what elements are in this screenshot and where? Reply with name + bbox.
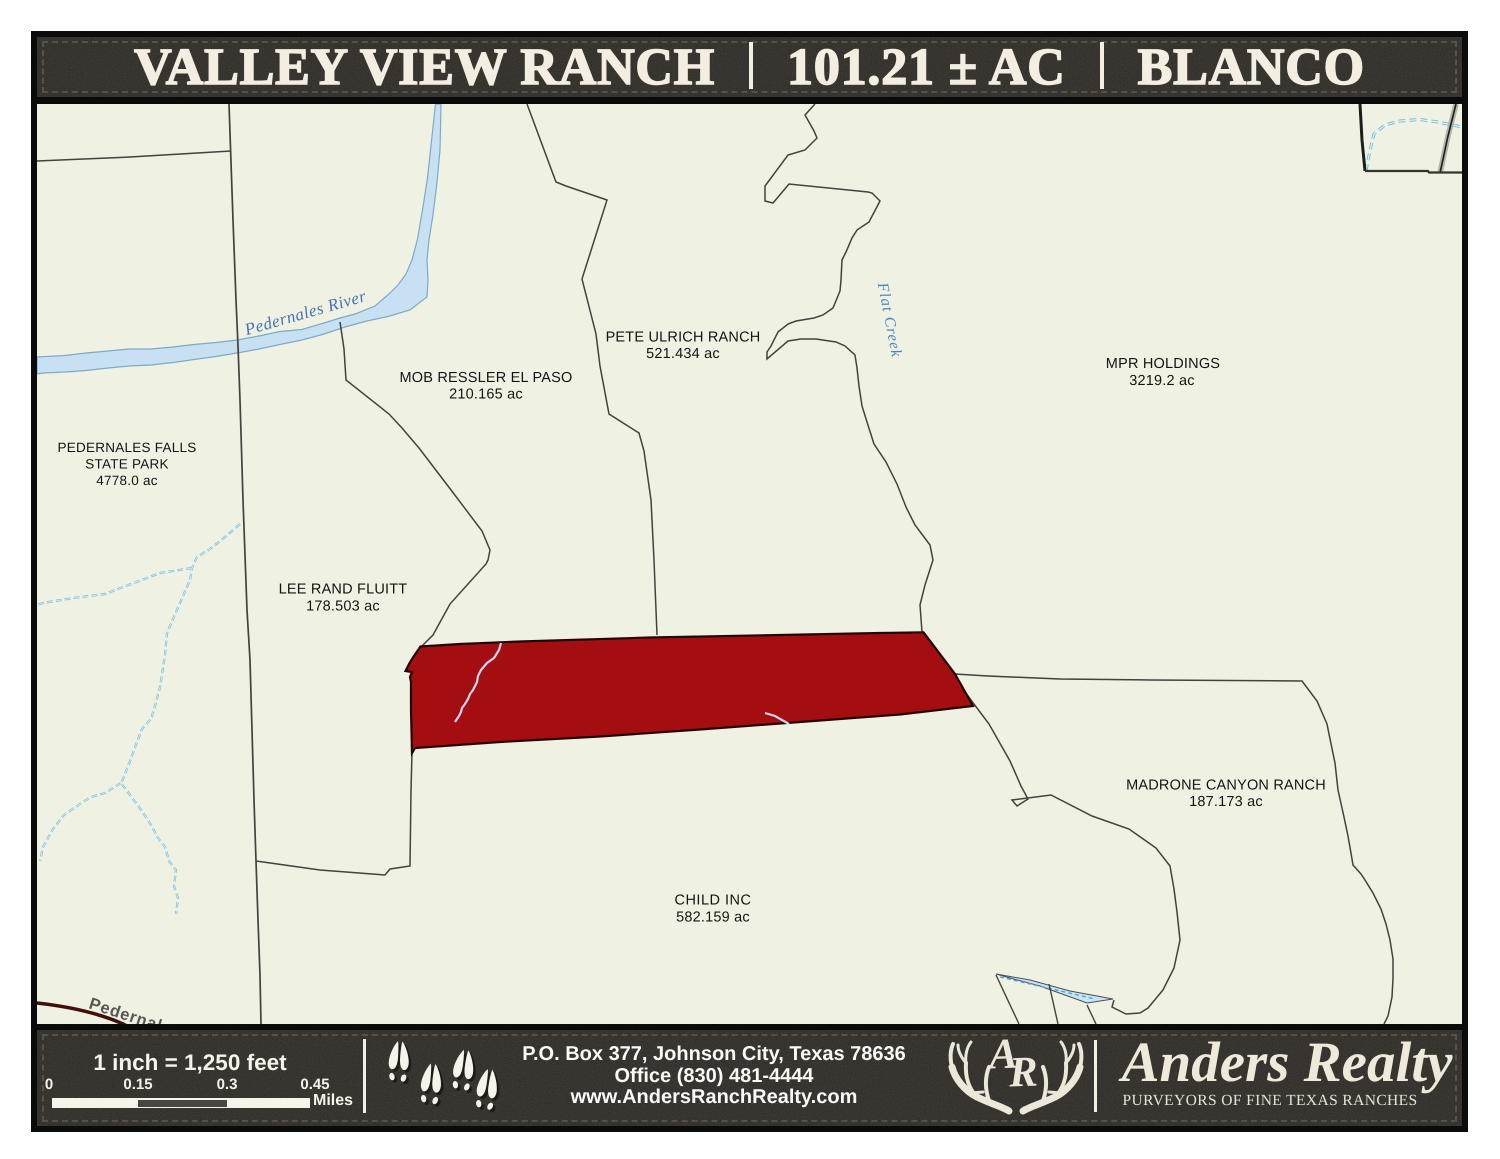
svg-text:582.159 ac: 582.159 ac (676, 910, 750, 926)
svg-text:CHILD INC: CHILD INC (674, 893, 751, 909)
svg-text:187.173 ac: 187.173 ac (1189, 794, 1263, 810)
svg-text:MOB RESSLER EL PASO: MOB RESSLER EL PASO (399, 370, 572, 386)
svg-text:521.434 ac: 521.434 ac (646, 346, 720, 362)
svg-text:STATE PARK: STATE PARK (85, 457, 169, 472)
svg-text:3219.2 ac: 3219.2 ac (1129, 373, 1195, 389)
svg-text:210.165 ac: 210.165 ac (449, 387, 523, 403)
svg-text:MADRONE CANYON RANCH: MADRONE CANYON RANCH (1126, 778, 1326, 794)
svg-text:4778.0 ac: 4778.0 ac (96, 473, 158, 488)
svg-text:PEDERNALES FALLS: PEDERNALES FALLS (57, 440, 196, 455)
svg-text:178.503 ac: 178.503 ac (306, 599, 380, 615)
svg-text:LEE RAND FLUITT: LEE RAND FLUITT (279, 582, 408, 598)
svg-text:PETE ULRICH RANCH: PETE ULRICH RANCH (606, 330, 761, 346)
svg-text:MPR HOLDINGS: MPR HOLDINGS (1106, 356, 1220, 372)
